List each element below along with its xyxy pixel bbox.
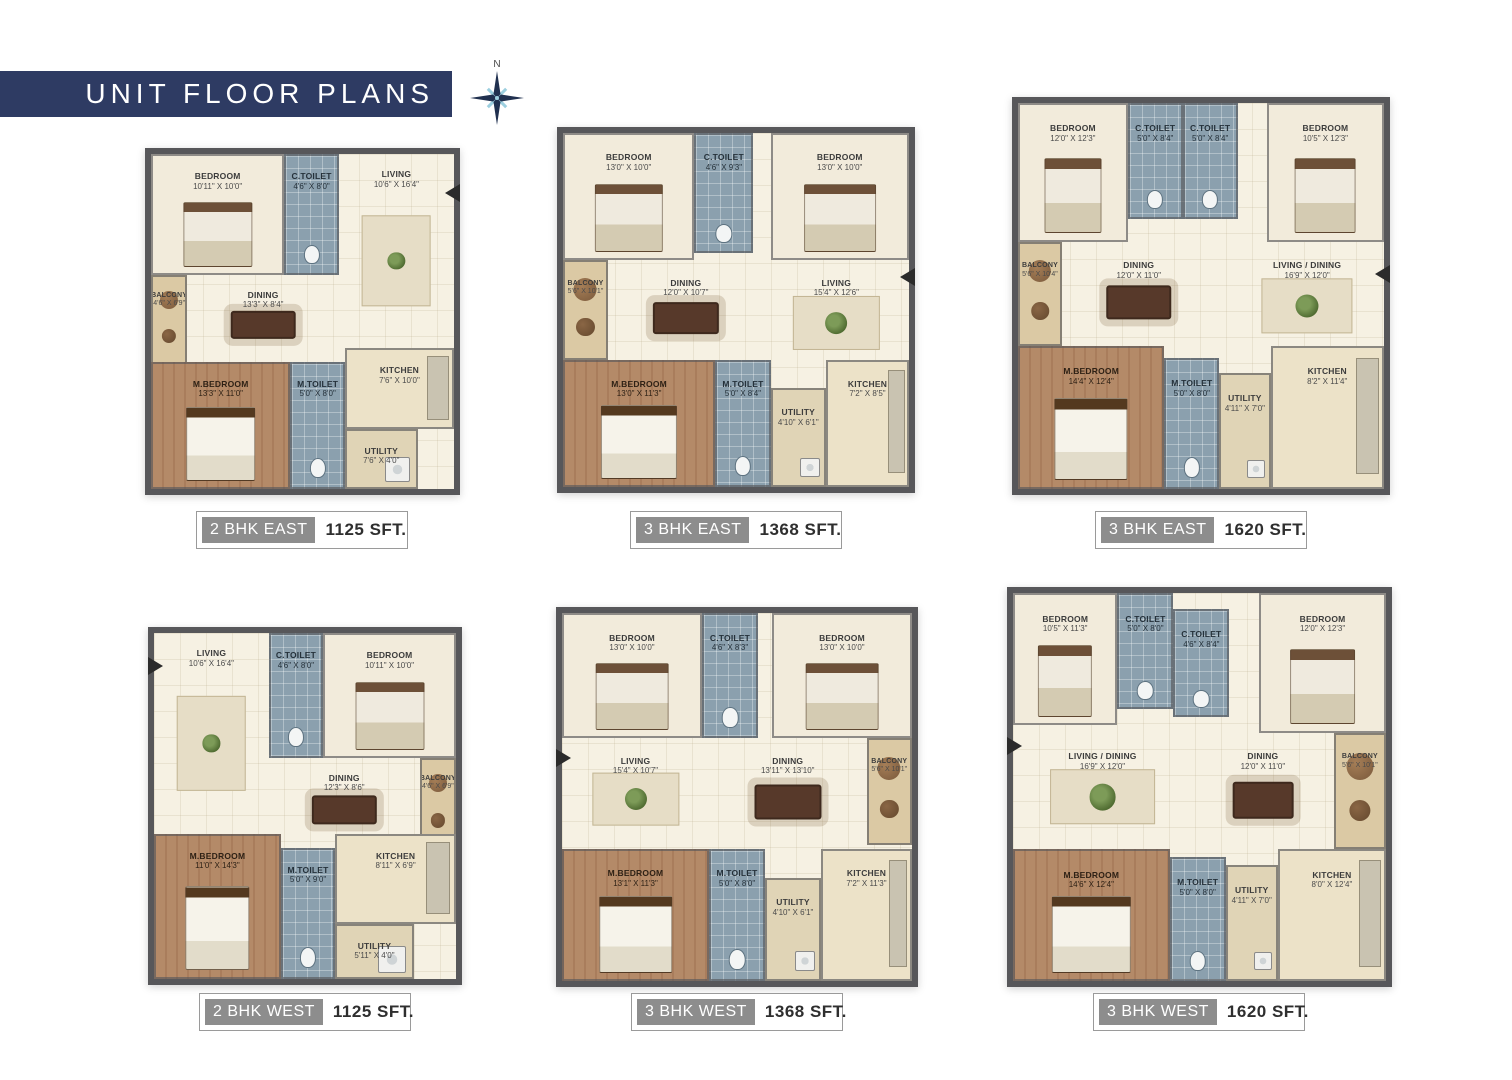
- room-name: BALCONY: [1342, 753, 1378, 762]
- entry-arrow-icon: [900, 268, 915, 286]
- room-name: DINING: [772, 756, 803, 767]
- room-name: C.TOILET: [704, 152, 744, 163]
- room-dims: 5'0" X 8'0": [1127, 624, 1163, 634]
- room-bedroom: BEDROOM10'5" X 12'3": [1267, 103, 1384, 242]
- room-dims: 5'0" X 9'0": [290, 875, 326, 885]
- room-dims: 15'4" X 10'7": [613, 766, 658, 776]
- room-utility: UTILITY4'10" X 6'1": [771, 388, 826, 487]
- plan-type-badge: 3 BHK EAST: [636, 517, 749, 543]
- room-dims: 10'5" X 12'3": [1303, 134, 1348, 144]
- room-name: M.BEDROOM: [1063, 366, 1119, 377]
- room-name: UTILITY: [358, 941, 392, 952]
- room-name: BEDROOM: [367, 650, 413, 661]
- plan-area-text: 1125 SFT.: [333, 1002, 414, 1022]
- floor-plan-3-bhk-east-1620: BEDROOM12'0" X 12'3"C.TOILET5'0" X 8'4"C…: [1012, 97, 1390, 495]
- room-dims: 13'11" X 13'10": [761, 766, 815, 776]
- room-kitchen: KITCHEN8'11" X 6'9": [335, 834, 456, 924]
- room-m-toilet: M.TOILET5'0" X 8'0": [290, 362, 345, 489]
- room-kitchen: KITCHEN8'0" X 12'4": [1278, 849, 1386, 981]
- room-dims: 7'2" X 11'3": [846, 879, 886, 889]
- room-kitchen: KITCHEN7'2" X 11'3": [821, 849, 912, 981]
- room-m-bedroom: M.BEDROOM13'3" X 11'0": [151, 362, 290, 489]
- room-bedroom: BEDROOM13'0" X 10'0": [772, 613, 912, 738]
- room-dims: 8'11" X 6'9": [376, 861, 416, 871]
- plan-label-3-bhk-east-1620: 3 BHK EAST1620 SFT.: [1095, 511, 1307, 549]
- room-dims: 13'0" X 10'0": [609, 643, 654, 653]
- room-balcony: BALCONY4'6" X 6'9": [151, 275, 187, 369]
- room-name: LIVING / DINING: [1068, 751, 1136, 762]
- room-name: M.TOILET: [716, 868, 757, 879]
- plan-type-badge: 3 BHK WEST: [637, 999, 755, 1025]
- room-living: LIVING10'6" X 16'4": [339, 154, 454, 348]
- plan-label-2-bhk-west: 2 BHK WEST1125 SFT.: [199, 993, 411, 1031]
- plan-label-3-bhk-west-1368: 3 BHK WEST1368 SFT.: [631, 993, 843, 1031]
- room-dims: 4'6" X 8'0": [278, 661, 314, 671]
- room-name: DINING: [248, 290, 279, 301]
- room-name: M.TOILET: [722, 379, 763, 390]
- compass-n-label: N: [493, 59, 500, 70]
- room-dims: 4'6" X 8'3": [712, 643, 748, 653]
- room-name: M.TOILET: [297, 379, 338, 390]
- room-balcony: BALCONY5'6" X 10'1": [563, 260, 608, 359]
- room-utility: UTILITY4'11" X 7'0": [1219, 373, 1270, 489]
- room-dims: 10'11" X 10'0": [193, 182, 242, 192]
- room-name: LIVING: [822, 278, 852, 289]
- room-dining: DINING12'0" X 11'0": [1192, 733, 1334, 849]
- plan-area-text: 1125 SFT.: [325, 520, 406, 540]
- compass-icon: N: [468, 56, 526, 128]
- room-c-toilet: C.TOILET4'6" X 9'3": [694, 133, 753, 253]
- room-name: LIVING: [382, 169, 412, 180]
- room-dims: 7'2" X 8'5": [849, 389, 885, 399]
- room-name: M.BEDROOM: [193, 379, 249, 390]
- room-name: UTILITY: [365, 446, 399, 457]
- room-dims: 5'6" X 10'1": [1342, 762, 1378, 771]
- room-name: DINING: [1247, 751, 1278, 762]
- room-name: KITCHEN: [1312, 870, 1351, 881]
- room-name: LIVING / DINING: [1273, 260, 1341, 271]
- room-dims: 12'3" X 8'6": [324, 783, 365, 793]
- room-name: M.BEDROOM: [1064, 870, 1120, 881]
- room-name: BEDROOM: [606, 152, 652, 163]
- plan-label-3-bhk-west-1620: 3 BHK WEST1620 SFT.: [1093, 993, 1305, 1031]
- room-name: BALCONY: [1022, 262, 1058, 271]
- room-m-toilet: M.TOILET5'0" X 8'0": [1170, 857, 1226, 981]
- entry-arrow-icon: [445, 184, 460, 202]
- floor-plan-3-bhk-west-1368: BEDROOM13'0" X 10'0"C.TOILET4'6" X 8'3"B…: [556, 607, 918, 987]
- room-dims: 4'6" X 8'4": [1183, 640, 1219, 650]
- room-name: BALCONY: [567, 280, 603, 289]
- room-bedroom: BEDROOM10'5" X 11'3": [1013, 593, 1117, 725]
- room-living: LIVING15'4" X 10'7": [562, 738, 709, 848]
- header-banner: UNIT FLOOR PLANS: [0, 71, 452, 117]
- floor-plan-3-bhk-west-1620: BEDROOM10'5" X 11'3"C.TOILET5'0" X 8'0"C…: [1007, 587, 1392, 987]
- room-dims: 4'10" X 6'1": [778, 418, 819, 428]
- plan-type-badge: 3 BHK WEST: [1099, 999, 1217, 1025]
- room-dims: 8'2" X 11'4": [1307, 377, 1347, 387]
- room-living-dining: LIVING / DINING16'9" X 12'0": [1013, 733, 1192, 849]
- room-dims: 14'6" X 12'4": [1069, 880, 1114, 890]
- room-dims: 13'0" X 10'0": [819, 643, 864, 653]
- room-dims: 5'0" X 8'0": [1179, 888, 1215, 898]
- plan-area-text: 1368 SFT.: [765, 1002, 847, 1022]
- room-name: C.TOILET: [1190, 123, 1230, 134]
- room-m-bedroom: M.BEDROOM14'6" X 12'4": [1013, 849, 1170, 981]
- room-dims: 7'6" X 10'0": [379, 376, 420, 386]
- room-dims: 13'0" X 10'0": [817, 163, 862, 173]
- room-name: UTILITY: [782, 407, 816, 418]
- room-name: C.TOILET: [1181, 629, 1221, 640]
- room-dims: 4'11" X 7'0": [1225, 404, 1265, 414]
- plan-label-2-bhk-east: 2 BHK EAST1125 SFT.: [196, 511, 408, 549]
- room-name: BEDROOM: [609, 633, 655, 644]
- plan-type-badge: 2 BHK EAST: [202, 517, 315, 543]
- room-living-dining: LIVING / DINING16'9" X 12'0": [1230, 242, 1384, 358]
- room-dims: 15'4" X 12'6": [814, 288, 859, 298]
- room-name: KITCHEN: [380, 365, 419, 376]
- room-kitchen: KITCHEN7'2" X 8'5": [826, 360, 909, 487]
- room-name: BEDROOM: [1303, 123, 1349, 134]
- room-name: BALCONY: [871, 758, 907, 767]
- room-dims: 5'6" X 10'1": [568, 288, 604, 297]
- room-name: BEDROOM: [1050, 123, 1096, 134]
- room-dining: DINING13'11" X 13'10": [709, 738, 867, 848]
- room-dims: 13'0" X 11'3": [617, 389, 662, 399]
- room-dims: 13'3" X 11'0": [198, 389, 243, 399]
- room-balcony: BALCONY5'6" X 10'1": [867, 738, 913, 845]
- room-dims: 5'0" X 8'4": [1137, 134, 1173, 144]
- room-name: M.TOILET: [287, 865, 328, 876]
- room-m-toilet: M.TOILET5'0" X 8'0": [709, 849, 765, 981]
- room-dims: 5'0" X 8'0": [719, 879, 755, 889]
- room-name: M.BEDROOM: [611, 379, 667, 390]
- room-dims: 16'9" X 12'0": [1285, 271, 1330, 281]
- room-name: M.TOILET: [1171, 378, 1212, 389]
- room-name: C.TOILET: [710, 633, 750, 644]
- room-name: BEDROOM: [819, 633, 865, 644]
- room-m-bedroom: M.BEDROOM14'4" X 12'4": [1018, 346, 1164, 489]
- room-name: BALCONY: [151, 292, 187, 301]
- room-name: C.TOILET: [1135, 123, 1175, 134]
- room-dims: 4'6" X 6'9": [153, 300, 185, 309]
- plan-label-3-bhk-east-1368: 3 BHK EAST1368 SFT.: [630, 511, 842, 549]
- room-dims: 5'11" X 4'0": [354, 951, 394, 961]
- room-name: KITCHEN: [376, 851, 415, 862]
- room-dims: 13'3" X 8'4": [243, 300, 284, 310]
- room-living: LIVING10'6" X 16'4": [154, 633, 269, 834]
- room-dims: 16'9" X 12'0": [1080, 762, 1125, 772]
- room-kitchen: KITCHEN7'6" X 10'0": [345, 348, 454, 428]
- room-dims: 5'0" X 8'0": [299, 389, 335, 399]
- room-name: KITCHEN: [847, 868, 886, 879]
- room-balcony: BALCONY5'6" X 10'1": [1334, 733, 1386, 849]
- room-name: BEDROOM: [1042, 614, 1088, 625]
- room-m-bedroom: M.BEDROOM13'0" X 11'3": [563, 360, 715, 487]
- room-dims: 12'0" X 12'3": [1050, 134, 1095, 144]
- room-name: DINING: [670, 278, 701, 289]
- room-dims: 5'0" X 8'4": [1192, 134, 1228, 144]
- room-dims: 8'0" X 12'4": [1312, 880, 1353, 890]
- room-dims: 5'6" X 10'4": [1022, 271, 1058, 280]
- room-utility: UTILITY4'11" X 7'0": [1226, 865, 1278, 981]
- room-name: UTILITY: [1228, 393, 1262, 404]
- room-bedroom: BEDROOM12'0" X 12'3": [1018, 103, 1128, 242]
- plan-type-badge: 3 BHK EAST: [1101, 517, 1214, 543]
- room-dims: 4'6" X 6'9": [422, 783, 454, 792]
- room-c-toilet: C.TOILET5'0" X 8'4": [1128, 103, 1183, 219]
- room-name: BEDROOM: [195, 171, 241, 182]
- room-dims: 10'5" X 11'3": [1043, 624, 1088, 634]
- room-dining: DINING13'3" X 8'4": [187, 275, 339, 362]
- room-name: KITCHEN: [848, 379, 887, 390]
- room-c-toilet: C.TOILET4'6" X 8'0": [269, 633, 323, 758]
- room-name: UTILITY: [1235, 885, 1269, 896]
- entry-arrow-icon: [1375, 265, 1390, 283]
- room-dims: 12'0" X 10'7": [663, 288, 708, 298]
- room-dims: 11'0" X 14'3": [195, 861, 240, 871]
- entry-arrow-icon: [1007, 737, 1022, 755]
- room-c-toilet: C.TOILET4'6" X 8'3": [702, 613, 758, 738]
- page: { "header": { "title": "UNIT FLOOR PLANS…: [0, 0, 1512, 1080]
- floor-plan-2-bhk-east: BEDROOM10'11" X 10'0"C.TOILET4'6" X 8'0"…: [145, 148, 460, 495]
- room-m-toilet: M.TOILET5'0" X 8'0": [1164, 358, 1219, 489]
- room-name: M.BEDROOM: [608, 868, 664, 879]
- room-name: KITCHEN: [1308, 366, 1347, 377]
- room-name: DINING: [329, 773, 360, 784]
- room-name: M.TOILET: [1177, 877, 1218, 888]
- plan-area-text: 1620 SFT.: [1227, 1002, 1309, 1022]
- room-name: C.TOILET: [291, 171, 331, 182]
- room-dims: 5'0" X 8'0": [1174, 389, 1210, 399]
- room-living: LIVING15'4" X 12'6": [764, 260, 909, 373]
- page-title: UNIT FLOOR PLANS: [85, 78, 434, 110]
- room-name: LIVING: [621, 756, 651, 767]
- room-m-bedroom: M.BEDROOM11'0" X 14'3": [154, 834, 281, 979]
- room-c-toilet: C.TOILET4'6" X 8'0": [284, 154, 339, 275]
- room-utility: UTILITY5'11" X 4'0": [335, 924, 414, 979]
- room-dims: 10'6" X 16'4": [189, 659, 234, 669]
- room-dims: 12'0" X 11'0": [1116, 271, 1161, 281]
- room-dims: 13'1" X 11'3": [613, 879, 658, 889]
- room-name: C.TOILET: [1125, 614, 1165, 625]
- floor-plan-2-bhk-west: LIVING10'6" X 16'4"C.TOILET4'6" X 8'0"BE…: [148, 627, 462, 985]
- plan-type-badge: 2 BHK WEST: [205, 999, 323, 1025]
- room-c-toilet: C.TOILET5'0" X 8'4": [1183, 103, 1238, 219]
- room-dims: 5'6" X 10'1": [871, 766, 907, 775]
- room-c-toilet: C.TOILET5'0" X 8'0": [1117, 593, 1173, 709]
- room-name: BEDROOM: [1300, 614, 1346, 625]
- room-dims: 7'6" X 4'0": [363, 456, 399, 466]
- entry-arrow-icon: [556, 749, 571, 767]
- room-utility: UTILITY4'10" X 6'1": [765, 878, 821, 981]
- entry-arrow-icon: [148, 657, 163, 675]
- room-name: M.BEDROOM: [190, 851, 246, 862]
- room-dims: 4'10" X 6'1": [773, 908, 814, 918]
- room-dims: 13'0" X 10'0": [606, 163, 651, 173]
- room-dims: 14'4" X 12'4": [1069, 377, 1114, 387]
- plan-area-text: 1620 SFT.: [1224, 520, 1306, 540]
- floor-plan-3-bhk-east-1368: BEDROOM13'0" X 10'0"C.TOILET4'6" X 9'3"B…: [557, 127, 915, 493]
- room-name: BEDROOM: [817, 152, 863, 163]
- room-name: LIVING: [197, 648, 227, 659]
- room-m-toilet: M.TOILET5'0" X 8'4": [715, 360, 770, 487]
- room-m-toilet: M.TOILET5'0" X 9'0": [281, 848, 335, 979]
- room-dims: 10'6" X 16'4": [374, 180, 419, 190]
- plan-area-text: 1368 SFT.: [759, 520, 841, 540]
- room-bedroom: BEDROOM13'0" X 10'0": [563, 133, 694, 260]
- room-dims: 4'6" X 8'0": [293, 182, 329, 192]
- room-m-bedroom: M.BEDROOM13'1" X 11'3": [562, 849, 709, 981]
- room-bedroom: BEDROOM10'11" X 10'0": [151, 154, 284, 275]
- room-bedroom: BEDROOM13'0" X 10'0": [562, 613, 702, 738]
- room-name: UTILITY: [776, 897, 810, 908]
- room-balcony: BALCONY5'6" X 10'4": [1018, 242, 1062, 346]
- room-kitchen: KITCHEN8'2" X 11'4": [1271, 346, 1384, 489]
- room-utility: UTILITY7'6" X 4'0": [345, 429, 418, 489]
- room-dining: DINING12'0" X 10'7": [608, 260, 764, 359]
- room-dims: 4'11" X 7'0": [1232, 896, 1272, 906]
- room-name: BALCONY: [420, 775, 456, 784]
- room-name: DINING: [1123, 260, 1154, 271]
- room-bedroom: BEDROOM12'0" X 12'3": [1259, 593, 1386, 733]
- room-dims: 12'0" X 11'0": [1241, 762, 1286, 772]
- room-dims: 4'6" X 9'3": [706, 163, 742, 173]
- room-dining: DINING12'0" X 11'0": [1062, 242, 1216, 346]
- room-c-toilet: C.TOILET4'6" X 8'4": [1173, 609, 1229, 718]
- room-name: C.TOILET: [276, 650, 316, 661]
- room-bedroom: BEDROOM10'11" X 10'0": [323, 633, 456, 758]
- room-dims: 12'0" X 12'3": [1300, 624, 1345, 634]
- room-dims: 5'0" X 8'4": [725, 389, 761, 399]
- room-bedroom: BEDROOM13'0" X 10'0": [771, 133, 909, 260]
- room-dims: 10'11" X 10'0": [365, 661, 414, 671]
